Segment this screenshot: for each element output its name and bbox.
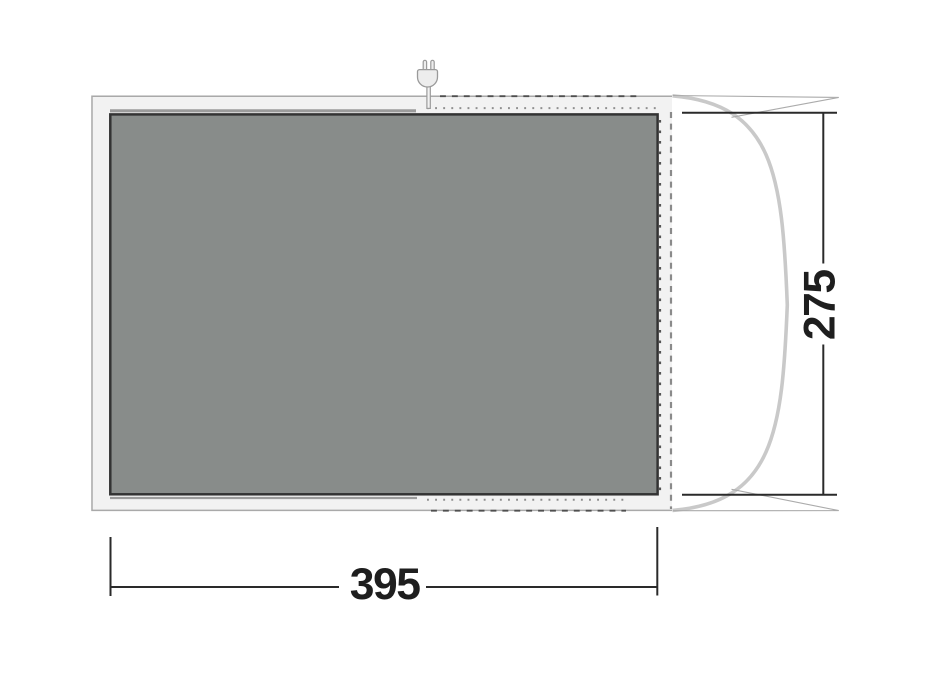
svg-text:275: 275 (796, 270, 845, 340)
svg-text:395: 395 (350, 560, 420, 609)
